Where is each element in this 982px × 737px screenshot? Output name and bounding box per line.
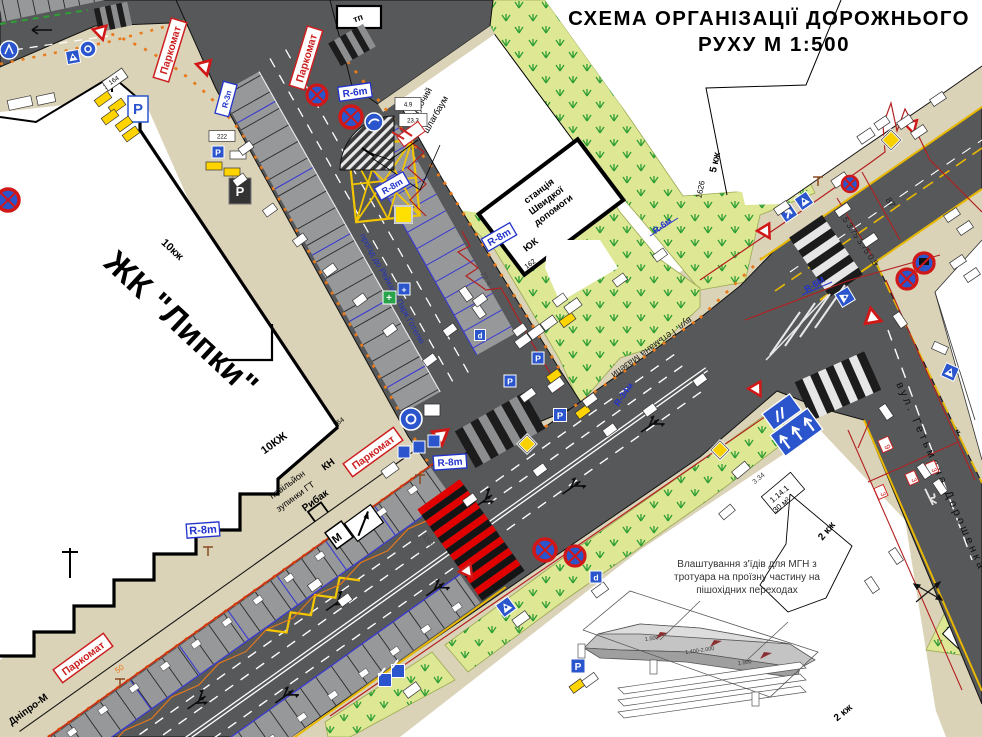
svg-text:d: d (478, 331, 483, 340)
svg-text:P: P (133, 101, 143, 118)
svg-text:R-8m: R-8m (189, 524, 217, 538)
svg-text:Влаштування з'їдів для МГН з: Влаштування з'їдів для МГН з (677, 559, 817, 570)
svg-text:+: + (401, 285, 406, 295)
svg-text:P: P (535, 354, 541, 364)
svg-text:P: P (215, 148, 221, 158)
svg-text:+: + (386, 293, 392, 304)
svg-text:СХЕМА ОРГАНІЗАЦІЇ ДОРОЖНЬОГО: СХЕМА ОРГАНІЗАЦІЇ ДОРОЖНЬОГО (568, 7, 970, 30)
svg-text:тротуара на проїзну частину на: тротуара на проїзну частину на (674, 572, 820, 583)
svg-text:222: 222 (217, 135, 228, 141)
svg-text:P: P (507, 377, 513, 387)
svg-text:РУХУ М 1:500: РУХУ М 1:500 (698, 33, 850, 56)
svg-text:R-8m: R-8m (437, 457, 463, 470)
svg-text:4.9: 4.9 (404, 103, 413, 109)
svg-text:d: d (593, 573, 598, 583)
svg-text:пішохідних переходах: пішохідних переходах (696, 585, 798, 596)
svg-text:P: P (575, 662, 582, 673)
svg-text:P: P (557, 411, 563, 421)
